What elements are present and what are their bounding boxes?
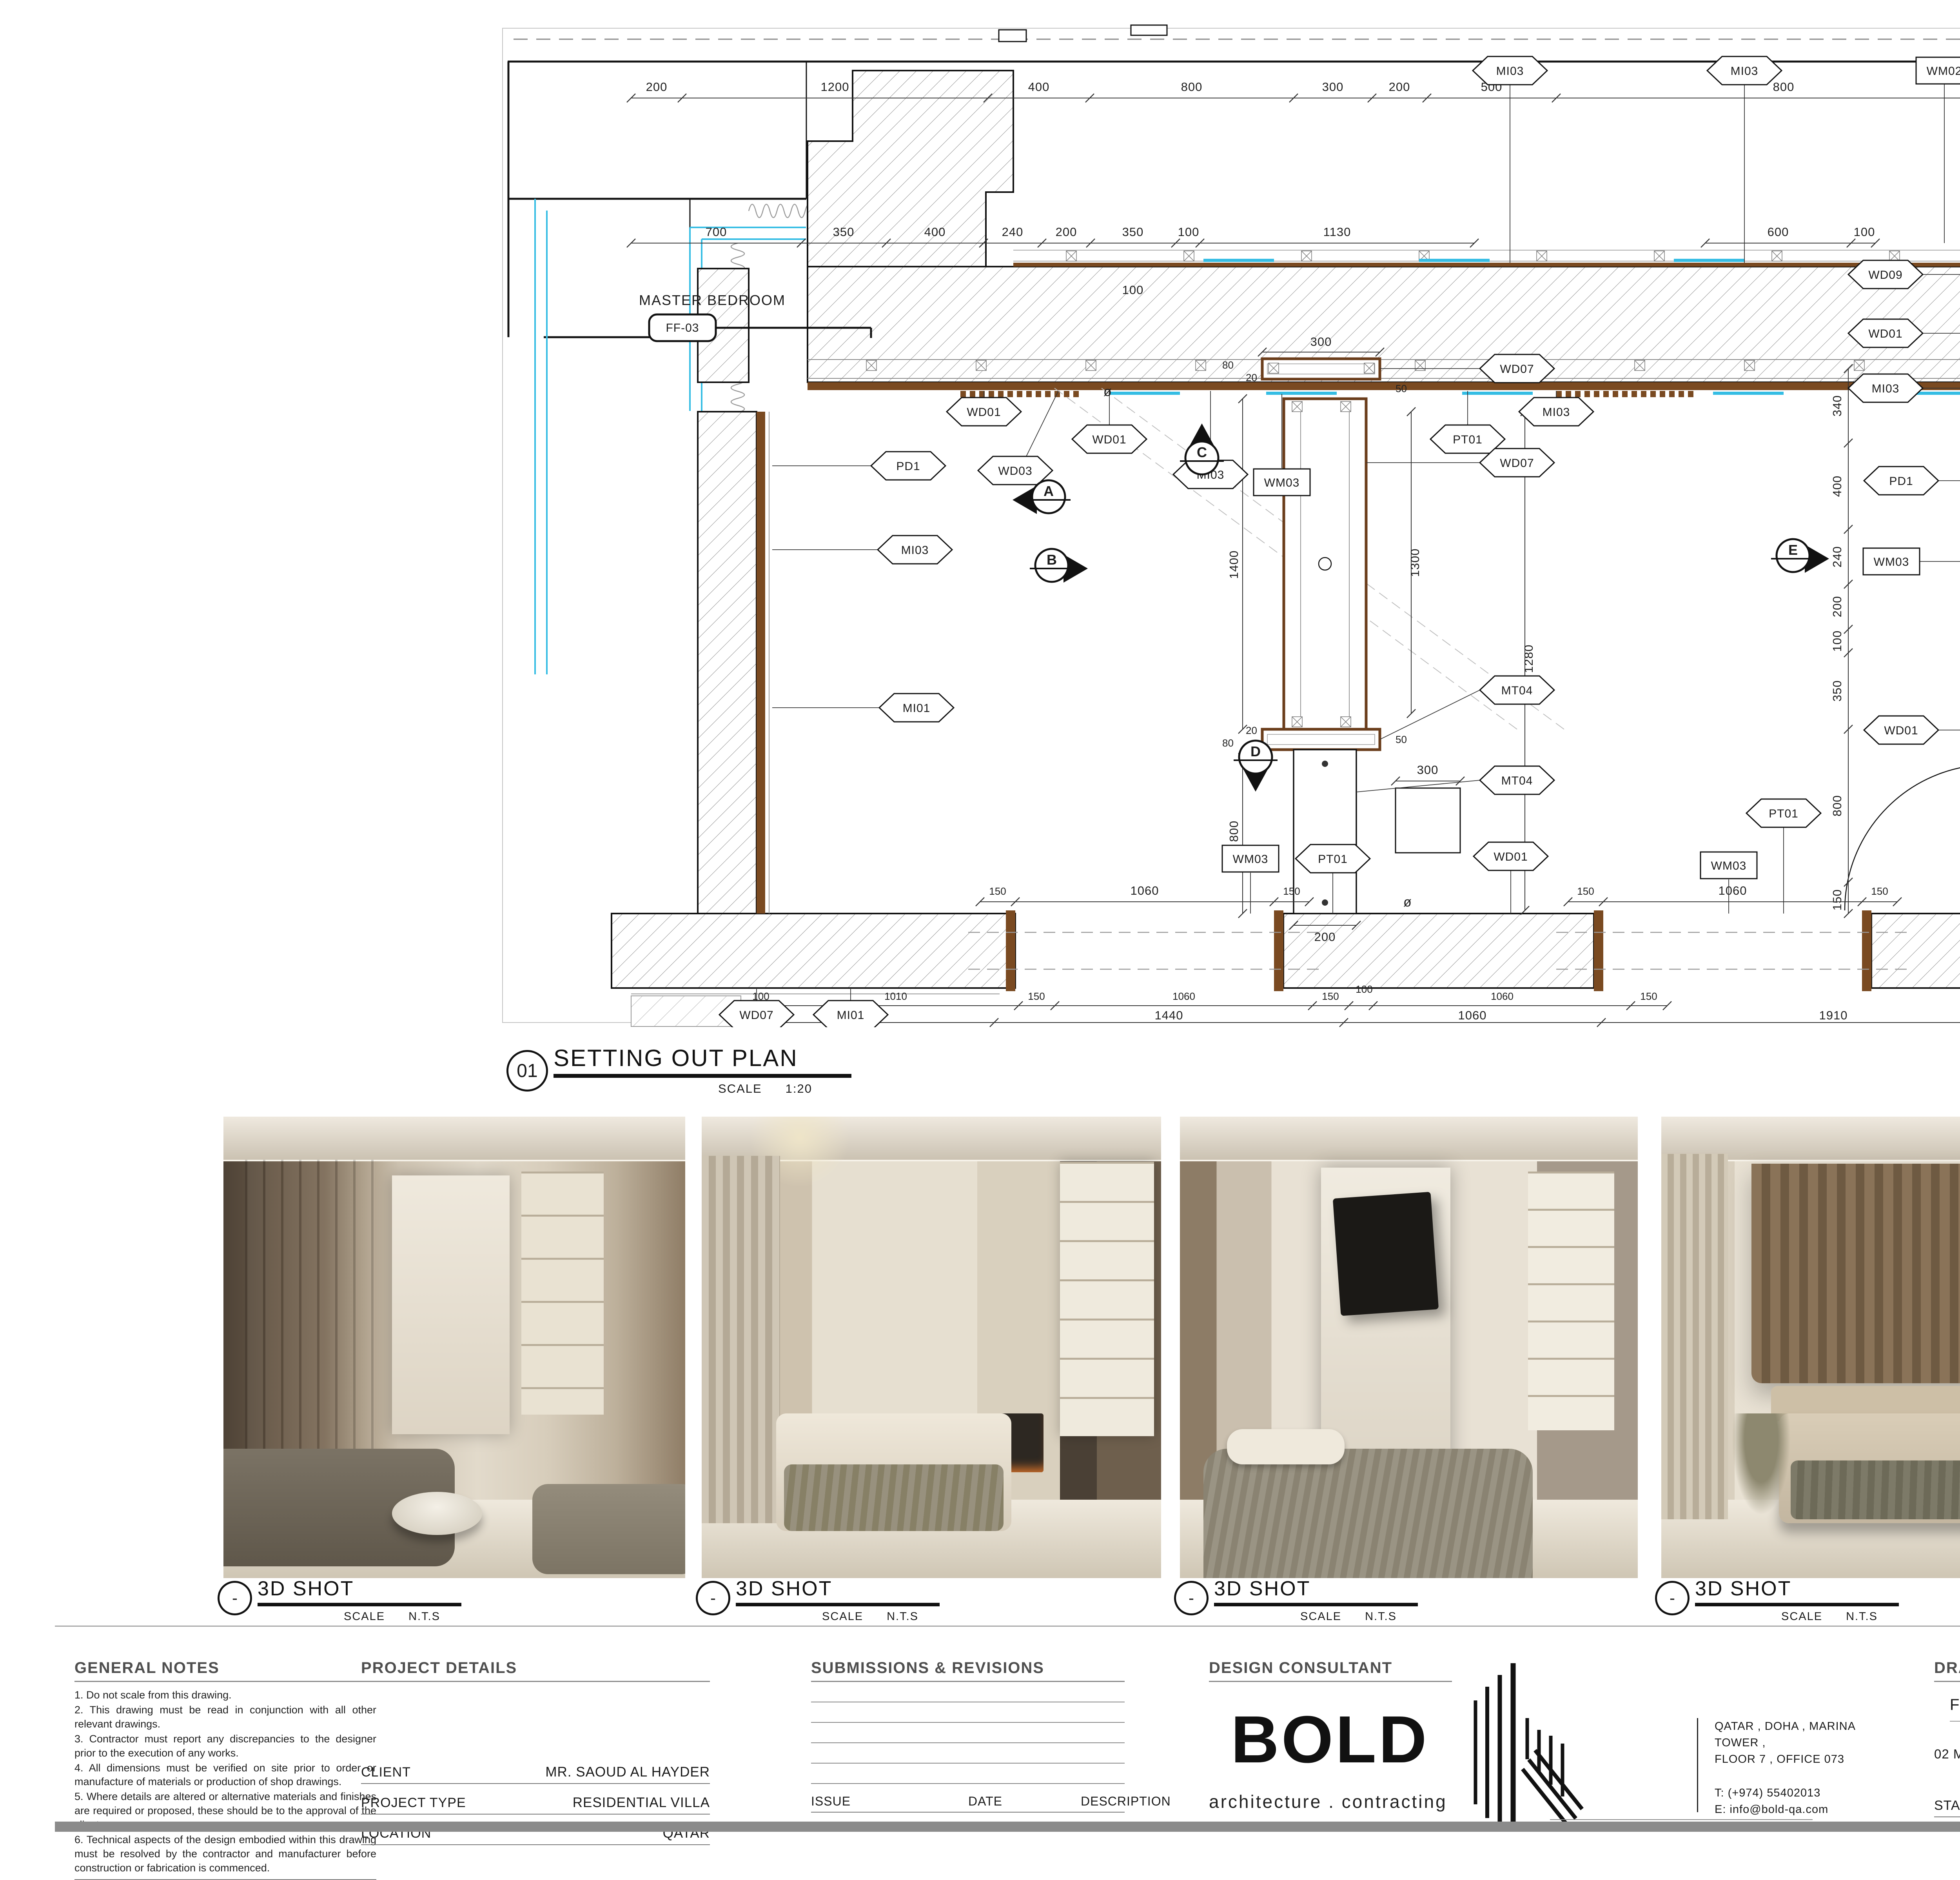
dim-label: 100 [1830,630,1844,652]
dim-label: 800 [1830,795,1844,817]
view-title: 3D SHOT [258,1577,461,1600]
scale-value: 1:20 [786,1082,812,1096]
dim-label: 300 [1417,763,1439,777]
section-marker-label: A [1044,483,1054,499]
submissions-section: SUBMISSIONS & REVISIONS ISSUE DATE DESCR… [811,1659,1125,1813]
note-item: 3. Contractor must report any discrepanc… [74,1732,376,1760]
view-title: SETTING OUT PLAN [554,1044,851,1072]
dim-label: 100 [1854,225,1875,239]
view-scale: SCALEN.T.S [344,1610,461,1623]
render-shelf-unit [521,1172,604,1415]
finish-tag-label: PD1 [896,460,920,473]
consultant-divider [1697,1718,1698,1812]
dim-label: 300 [1322,80,1344,94]
consultant-email: E: info@bold-qa.com [1715,1801,1899,1818]
finish-tag-label: MI03 [1543,406,1570,419]
finish-tag-label: WD03 [998,465,1032,478]
consultant-phone: T: (+974) 55402013 [1715,1785,1899,1801]
dim-label: 1910 [1819,1008,1848,1022]
drawing-sheet: { "plan": { "room_label": "MASTER BEDROO… [0,0,1960,1834]
section-header: DESIGN CONSULTANT [1209,1659,1452,1682]
finish-tag-label: MT04 [1501,684,1533,697]
finish-tag-label: WD09 [1868,269,1902,282]
dim-label: 1060 [1458,1008,1487,1022]
dim-label: 1300 [1408,549,1422,577]
view-ref-bubble: - [696,1581,730,1615]
scale-label: SCALE [822,1610,863,1623]
dim-label: 700 [706,225,727,239]
finish-tag-label: WD01 [1092,433,1126,446]
render-marble-partition [392,1175,510,1434]
dim-label: 300 [1310,335,1332,349]
render-3d-shot-1 [223,1117,685,1578]
view-scale: SCALEN.T.S [1300,1610,1418,1623]
section-header: GENERAL NOTES [74,1659,376,1682]
finish-tag-label: WM02 [1927,65,1960,78]
bold-logo-mark [1452,1663,1617,1832]
note-item: 1. Do not scale from this drawing. [74,1688,376,1702]
render-shelf-unit [1528,1172,1614,1430]
sheet-footer-bar [55,1822,1960,1832]
dim-label: 800 [1227,821,1241,842]
finish-tag-label: PT01 [1769,807,1798,820]
dim-label: 150 [1322,990,1339,1002]
dimension-chain-right-inner: 340 400 240 200 100 350 800 150 [1830,364,1853,918]
shot-caption-4: - 3D SHOT SCALEN.T.S [1655,1577,1899,1623]
dim-label: 150 [1871,885,1888,897]
view-ref-bubble: - [218,1581,252,1615]
dim-label: 150 [1577,885,1594,897]
dim-label: 100 [1122,283,1144,297]
project-type-row: PROJECT TYPE RESIDENTIAL VILLA [361,1795,710,1815]
finish-tag-label: WD01 [1868,327,1902,340]
dim-label: 240 [1002,225,1024,239]
render-3d-shot-2 [702,1117,1161,1578]
finish-tag-label: MI03 [1731,65,1759,78]
revision-row [811,1723,1125,1743]
dim-label: 150 [989,885,1006,897]
note-item: 2. This drawing must be read in conjunct… [74,1703,376,1731]
finish-tag-label: WM03 [1711,859,1747,872]
render-curtain-left [1661,1154,1728,1519]
finish-tag-label: MT04 [1501,774,1533,787]
dim-label: 200 [1056,225,1077,239]
view-ref-bubble: - [1655,1581,1690,1615]
door [1845,760,1960,913]
finish-tag-label: WD07 [1500,457,1534,470]
dim-label: 350 [1830,680,1844,702]
scale-label: SCALE [718,1082,762,1096]
drawing-title-text: 02 MASTER BEDROOM - SETTING OUT PLAN [1934,1747,1960,1762]
render-bed [1203,1449,1533,1578]
render-coffee-table [392,1492,482,1535]
outlet-icon: ø [1103,384,1112,399]
scale-value: N.T.S [1846,1610,1878,1623]
dim-label: 200 [1389,80,1410,94]
finish-tag-label: PT01 [1453,433,1483,446]
room-finish-tag: FF-03 [666,322,699,334]
scale-value: N.T.S [408,1610,440,1623]
shot-caption-3: - 3D SHOT SCALEN.T.S [1174,1577,1418,1623]
render-3d-shot-3 [1180,1117,1638,1578]
dim-label: 1060 [1131,884,1159,897]
note-item: 4. All dimensions must be verified on si… [74,1761,376,1789]
finish-tag-label: WM03 [1264,476,1300,489]
finish-tag-label: WD01 [1884,724,1918,737]
dim-label: 150 [1830,889,1844,911]
section-header: DRAWING TITLE [1934,1659,1960,1682]
finish-tag-label: PT01 [1318,853,1348,866]
consultant-rule [1550,1819,1813,1820]
dim-label: 400 [924,225,946,239]
render-ceiling [223,1117,685,1161]
scale-label: SCALE [1300,1610,1341,1623]
finish-tag-label: WD01 [967,406,1001,419]
view-title: 3D SHOT [1214,1577,1418,1600]
finish-tag-label: MI03 [901,544,929,557]
field-value: RESIDENTIAL VILLA [573,1795,710,1811]
view-scale: SCALEN.T.S [822,1610,940,1623]
section-marker-label: D [1250,743,1261,759]
shot-caption-1: - 3D SHOT SCALEN.T.S [218,1577,461,1623]
dim-label: 200 [1830,596,1844,618]
finish-tag-label: WM03 [1233,853,1269,866]
render-plant-left [1732,1413,1791,1515]
column-label: DESCRIPTION [1081,1794,1171,1809]
address-line: QATAR , DOHA , MARINA TOWER , [1715,1718,1899,1751]
finish-tag-label: WD01 [1494,850,1528,863]
render-blanket [1791,1460,1960,1519]
section-header: PROJECT DETAILS [361,1659,710,1682]
finish-tag-label: WM03 [1874,556,1909,569]
outlet-icon: ø [1403,895,1412,910]
dim-label: 1010 [884,990,907,1002]
caption-rule [1695,1603,1899,1606]
dim-label: 200 [1314,930,1336,944]
dim-label: 80 [1222,737,1234,749]
dim-label: 20 [1246,372,1257,383]
dim-label: 1060 [1491,990,1514,1002]
section-marker-label: C [1197,444,1207,460]
revision-row [811,1764,1125,1784]
finish-tag-label: MI01 [837,1009,865,1022]
column-label: DATE [968,1794,1002,1809]
dim-label: 50 [1396,383,1407,394]
note-item: 6. Technical aspects of the design embod… [74,1833,376,1875]
dim-label: 340 [1830,395,1844,417]
dim-label: 1400 [1227,550,1241,579]
consultant-address: QATAR , DOHA , MARINA TOWER , FLOOR 7 , … [1715,1718,1899,1818]
dim-label: 80 [1222,359,1234,371]
design-consultant-section: DESIGN CONSULTANT BOLD architecture . co… [1209,1659,1899,1824]
titleblock-divider [55,1626,1960,1627]
dim-label: 350 [833,225,855,239]
scale-value: N.T.S [887,1610,918,1623]
view-title: 3D SHOT [1695,1577,1899,1600]
field-label: STAGE [1934,1798,1960,1813]
field-label: CLIENT [361,1765,411,1780]
render-tv [1333,1192,1439,1316]
scale-value: N.T.S [1365,1610,1397,1623]
caption-rule [258,1603,461,1606]
render-pillow [1227,1429,1345,1464]
render-wood-panel-wall [245,1160,374,1476]
room-name: MASTER BEDROOM [639,292,786,308]
dim-label: 1130 [1323,225,1351,239]
finish-tag-label: MI03 [1872,382,1900,395]
shot-caption-2: - 3D SHOT SCALEN.T.S [696,1577,940,1623]
render-ceiling [1180,1117,1638,1161]
caption-rule [554,1074,851,1078]
view-scale: SCALEN.T.S [1781,1610,1899,1623]
drawing-title-section: DRAWING TITLE FIRST FLOOR 02 MASTER BEDR… [1934,1659,1960,1817]
address-line: FLOOR 7 , OFFICE 073 [1715,1751,1899,1767]
render-wood-slat-wall [1751,1164,1960,1383]
dim-label: 600 [1768,225,1789,239]
general-notes-section: GENERAL NOTES 1. Do not scale from this … [74,1659,376,1880]
column-label: ISSUE [811,1794,851,1809]
revision-row [811,1743,1125,1764]
dim-label: 400 [1028,80,1050,94]
dim-label: 1060 [1172,990,1195,1002]
dim-label: 1280 [1522,645,1535,673]
scale-label: SCALE [1781,1610,1822,1623]
dim-label: 400 [1830,476,1844,497]
dim-label: 1060 [1719,884,1747,897]
scale-label: SCALE [344,1610,385,1623]
dim-label: 800 [1181,80,1203,94]
setting-out-plan: MASTER BEDROOM FF-03 200 1200 400 800 30… [498,24,1960,1027]
view-scale: SCALE 1:20 [718,1082,851,1096]
section-marker-label: B [1047,552,1057,568]
bold-logo-subtext: architecture . contracting [1209,1791,1447,1812]
dim-label: 800 [1773,80,1795,94]
client-row: CLIENT MR. SAOUD AL HAYDER [361,1764,710,1784]
view-ref-bubble: - [1174,1581,1209,1615]
revision-columns: ISSUE DATE DESCRIPTION [811,1794,1125,1813]
dim-label: 20 [1246,725,1257,736]
finish-tag-label: PD1 [1889,475,1913,488]
dim-label: 350 [1122,225,1144,239]
view-title: 3D SHOT [736,1577,940,1600]
general-notes-text: 1. Do not scale from this drawing. 2. Th… [74,1688,376,1880]
glazing-lines [535,199,806,674]
dim-label: 1440 [1155,1008,1183,1022]
dim-label: 150 [1028,990,1045,1002]
render-3d-shot-4 [1661,1117,1960,1578]
render-curtain [702,1156,780,1523]
caption-rule [1214,1603,1418,1606]
render-armchair [532,1484,685,1574]
field-value: MR. SAOUD AL HAYDER [545,1764,710,1780]
stage-row: STAGE WORKING DRAWINGS [1934,1798,1960,1817]
caption-rule [736,1603,940,1606]
dim-label: 100 [1178,225,1200,239]
section-marker-label: E [1788,542,1798,558]
dim-label: 100 [1356,983,1372,995]
revision-row [811,1702,1125,1723]
finish-tag-label: MI03 [1496,65,1524,78]
revision-row [811,1682,1125,1702]
dim-label: 240 [1830,546,1844,568]
section-header: SUBMISSIONS & REVISIONS [811,1659,1125,1682]
dim-label: 150 [1283,885,1300,897]
dim-label: 150 [1640,990,1657,1002]
plan-caption: 01 SETTING OUT PLAN SCALE 1:20 [506,1044,851,1096]
field-label: PROJECT TYPE [361,1795,466,1811]
dim-label: 200 [646,80,668,94]
render-shelf-unit [1060,1162,1154,1436]
render-blanket [784,1464,1004,1531]
dim-label: 1200 [821,80,849,94]
finish-tag-label: MI01 [903,702,931,715]
view-ref-bubble: 01 [506,1050,548,1092]
finish-tag-label: WD07 [739,1009,773,1022]
section-markers: A B C D E [1013,423,1829,792]
floor-label: FIRST FLOOR [1950,1696,1960,1722]
bold-logo-text: BOLD [1231,1706,1429,1773]
dim-label: 50 [1396,734,1407,745]
project-details-section: PROJECT DETAILS CLIENT MR. SAOUD AL HAYD… [361,1659,710,1845]
finish-tag-label: WD07 [1500,363,1534,376]
